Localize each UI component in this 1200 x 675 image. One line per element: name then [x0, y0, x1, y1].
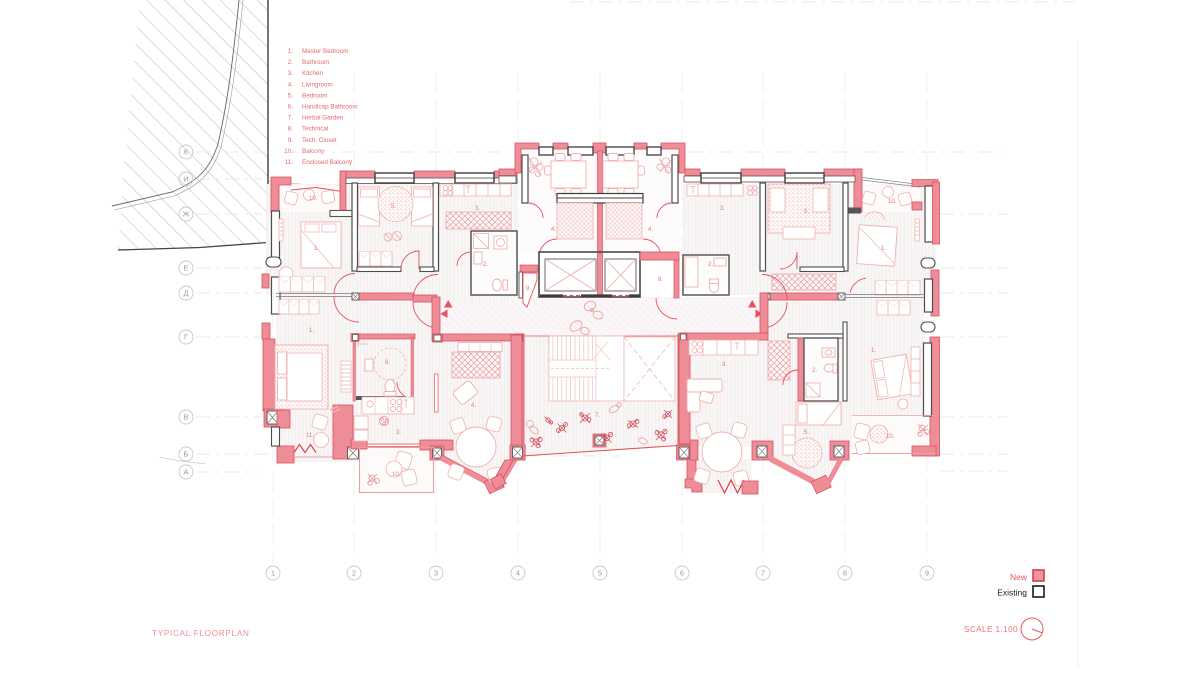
svg-text:1.: 1.: [881, 246, 886, 252]
svg-text:Master Bedroom: Master Bedroom: [302, 48, 349, 55]
svg-text:4: 4: [516, 569, 520, 578]
svg-text:1.: 1.: [871, 348, 876, 354]
svg-text:Enclosed Balcony: Enclosed Balcony: [302, 159, 353, 166]
svg-text:4.: 4.: [288, 81, 294, 88]
svg-text:2: 2: [352, 569, 356, 578]
svg-text:Kitchen: Kitchen: [302, 70, 324, 77]
svg-text:7.: 7.: [288, 115, 294, 122]
svg-text:New: New: [1010, 572, 1028, 582]
svg-text:5.: 5.: [288, 92, 294, 99]
svg-text:Handicap Bathroom: Handicap Bathroom: [302, 104, 358, 111]
svg-text:10.: 10.: [886, 434, 895, 440]
svg-text:2.: 2.: [708, 262, 713, 268]
svg-text:3.: 3.: [475, 206, 480, 212]
svg-text:5.: 5.: [804, 209, 809, 215]
svg-text:2.: 2.: [812, 368, 817, 374]
svg-text:1.: 1.: [288, 48, 294, 55]
svg-text:3.: 3.: [722, 362, 727, 368]
svg-text:Livingroom: Livingroom: [302, 81, 333, 88]
svg-text:7: 7: [761, 569, 765, 578]
svg-text:7.: 7.: [595, 413, 600, 419]
svg-text:10.: 10.: [392, 472, 401, 478]
svg-text:3.: 3.: [720, 206, 725, 212]
svg-text:Balcony: Balcony: [302, 148, 325, 155]
svg-text:1: 1: [271, 569, 275, 578]
svg-text:6.: 6.: [288, 104, 294, 111]
svg-text:11.: 11.: [285, 159, 294, 166]
svg-text:4.: 4.: [648, 227, 653, 233]
svg-text:2.: 2.: [483, 262, 488, 268]
svg-text:5.: 5.: [804, 430, 809, 436]
svg-text:SCALE 1:100: SCALE 1:100: [964, 625, 1018, 634]
svg-text:Г: Г: [184, 333, 188, 342]
svg-text:4.: 4.: [471, 403, 476, 409]
svg-text:В: В: [183, 413, 188, 422]
svg-text:3: 3: [434, 569, 438, 578]
svg-text:11.: 11.: [306, 433, 314, 439]
svg-text:Herbal Garden: Herbal Garden: [302, 115, 344, 122]
svg-text:Е: Е: [183, 264, 188, 273]
svg-text:К: К: [184, 148, 189, 157]
svg-text:Б: Б: [184, 450, 189, 459]
svg-text:3.: 3.: [396, 430, 401, 436]
svg-text:10.: 10.: [888, 199, 897, 205]
svg-text:Existing: Existing: [997, 588, 1027, 598]
svg-text:9: 9: [925, 569, 929, 578]
svg-text:5.: 5.: [391, 204, 396, 210]
svg-text:3.: 3.: [288, 70, 294, 77]
svg-text:8.: 8.: [658, 277, 663, 283]
svg-text:Д: Д: [183, 289, 188, 298]
svg-text:6: 6: [680, 569, 684, 578]
svg-text:1.: 1.: [314, 246, 319, 252]
svg-text:5: 5: [598, 569, 602, 578]
svg-text:TYPICAL FLOORPLAN: TYPICAL FLOORPLAN: [152, 629, 250, 638]
svg-text:Ж: Ж: [183, 210, 190, 219]
svg-text:9.: 9.: [526, 286, 531, 292]
svg-text:Bathroom: Bathroom: [302, 59, 329, 66]
svg-text:4.: 4.: [551, 227, 556, 233]
svg-text:А: А: [183, 468, 188, 477]
svg-text:2.: 2.: [288, 59, 294, 66]
svg-text:Bedroom: Bedroom: [302, 92, 328, 99]
svg-text:10.: 10.: [309, 196, 318, 202]
svg-text:6.: 6.: [385, 360, 390, 366]
svg-text:Technical: Technical: [302, 126, 328, 133]
svg-text:И: И: [183, 175, 188, 184]
svg-text:8.: 8.: [288, 126, 294, 133]
svg-text:8: 8: [843, 569, 847, 578]
svg-text:Tech. Closet: Tech. Closet: [302, 137, 337, 144]
svg-text:1.: 1.: [309, 328, 314, 334]
svg-text:10.: 10.: [284, 148, 293, 155]
svg-text:9.: 9.: [288, 137, 294, 144]
